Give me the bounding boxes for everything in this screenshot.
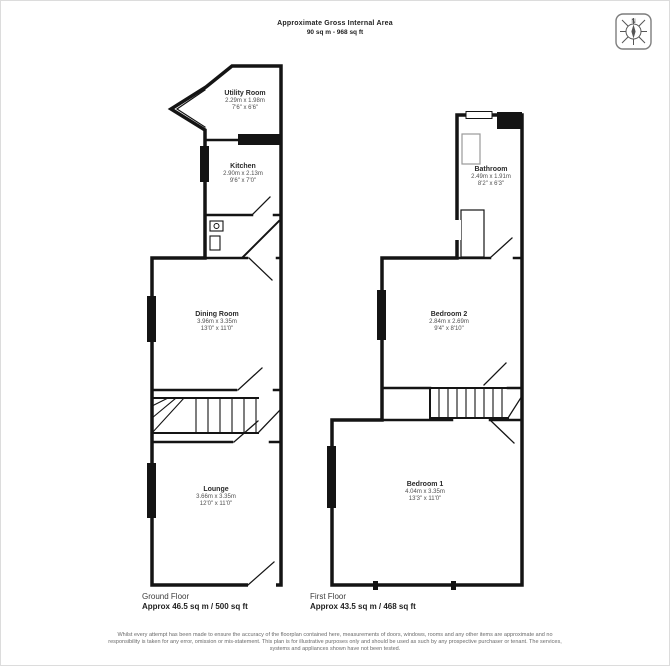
page-subtitle: 90 sq m - 968 sq ft [0,29,670,36]
room-label-bedroom-1: Bedroom 1 4.04m x 3.35m 13'3" x 11'0" [405,481,445,503]
page-title: Approximate Gross Internal Area [0,20,670,27]
disclaimer-line-3: systems and appliances shown have not be… [58,646,613,653]
compass-icon: N [615,13,652,50]
room-label-bathroom: Bathroom 2.49m x 1.91m 8'2" x 6'3" [471,166,511,188]
first-floor-caption: First Floor Approx 43.5 sq m / 468 sq ft [310,592,416,611]
floorplan-drawing [0,0,670,666]
floorplan-page: Approximate Gross Internal Area 90 sq m … [0,0,670,666]
disclaimer-line-1: Whilst every attempt has been made to en… [58,632,613,639]
disclaimer-line-2: responsibility is taken for any error, o… [58,639,613,646]
room-label-dining-room: Dining Room 3.96m x 3.35m 13'0" x 11'0" [195,311,239,333]
room-label-lounge: Lounge 3.66m x 3.35m 12'0" x 11'0" [196,486,236,508]
room-label-bedroom-2: Bedroom 2 2.84m x 2.69m 9'4" x 8'10" [429,311,469,333]
compass-north-label: N [631,19,635,25]
room-label-kitchen: Kitchen 2.90m x 2.13m 9'6" x 7'0" [223,163,263,185]
room-label-utility-room: Utility Room 2.29m x 1.98m 7'6" x 6'6" [224,90,265,112]
ground-floor-caption: Ground Floor Approx 46.5 sq m / 500 sq f… [142,592,248,611]
disclaimer: Whilst every attempt has been made to en… [58,632,613,653]
header: Approximate Gross Internal Area 90 sq m … [0,20,670,36]
